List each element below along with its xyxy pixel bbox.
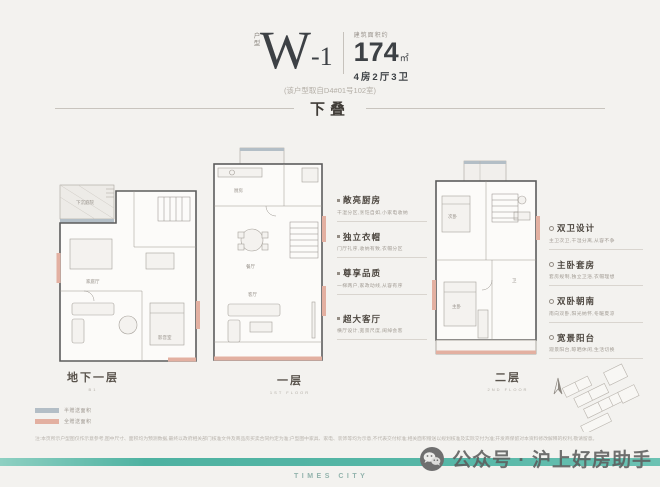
brand-logo-text: TIMES CITY — [294, 473, 368, 480]
annotation-item: 双卫设计 主卫次卫,干湿分离,从容不争 — [549, 222, 643, 250]
annotations-center: 敞亮厨房 干湿分区,烹饪自如,小家电收纳 独立衣帽 门厅礼序,收纳有致,衣帽分区… — [337, 194, 427, 349]
area-unit: ㎡ — [400, 51, 409, 64]
area-block: 建筑面积约 174 ㎡ 4房2厅3卫 — [354, 30, 410, 83]
circle-bullet-icon — [549, 226, 554, 231]
floorplan-f2: 次卧 主卧 卫 — [430, 160, 542, 366]
room-layout: 4房2厅3卫 — [354, 69, 410, 83]
floor-label-b1: 地下一层 B1 — [67, 369, 119, 392]
page: 户型 W -1 建筑面积约 174 ㎡ 4房2厅3卫 (该户型取自D4#01号1… — [0, 0, 660, 487]
divider-line-right — [366, 108, 605, 109]
site-plan — [540, 358, 650, 432]
square-bullet-icon — [337, 272, 340, 275]
unit-name-group: 户型 W -1 — [250, 28, 333, 74]
room-label-court: 下沉庭院 — [76, 199, 94, 206]
room-label-master: 主卧 — [452, 303, 461, 310]
floorplan-f1: 厨房 餐厅 客厅 — [206, 146, 330, 372]
room-label-dining: 餐厅 — [246, 263, 255, 270]
annotation-item: 尊享品质 一梯两户,家政动线,从容有序 — [337, 267, 427, 295]
north-arrow-icon — [554, 378, 562, 394]
section-divider: 下叠 — [55, 98, 605, 119]
room-label-media: 影音室 — [158, 334, 172, 341]
area-value: 174 — [354, 39, 399, 66]
divider-line-left — [55, 108, 294, 109]
room-label-living: 客厅 — [248, 291, 257, 298]
annotations-right: 双卫设计 主卫次卫,干湿分离,从容不争 主卧套房 套房规制,独立卫浴,衣帽理想 … — [549, 222, 643, 368]
floor-label-f1: 一层 1ST FLOOR — [255, 372, 325, 395]
title-block: 户型 W -1 建筑面积约 174 ㎡ 4房2厅3卫 — [0, 28, 660, 83]
full-gift-swatch — [35, 419, 59, 424]
section-title: 下叠 — [310, 98, 350, 119]
unit-name: W — [260, 28, 311, 74]
circle-bullet-icon — [549, 335, 554, 340]
annotation-item: 独立衣帽 门厅礼序,收纳有致,衣帽分区 — [337, 231, 427, 259]
circle-bullet-icon — [549, 262, 554, 267]
annotation-item: 主卧套房 套房规制,独立卫浴,衣帽理想 — [549, 259, 643, 287]
room-label-bath: 卫 — [512, 278, 517, 283]
legend-item-full-gift: 全赠送面积 — [35, 418, 92, 425]
floorplan-b1: 下沉庭院 家庭厅 影音室 — [50, 183, 202, 366]
source-note: (该户型取自D4#01号102室) — [0, 85, 660, 96]
unit-type-label: 户型 — [250, 32, 260, 47]
title-divider — [343, 32, 344, 74]
wechat-icon — [419, 446, 445, 472]
floor-sublabel-b1: B1 — [67, 387, 119, 392]
disclaimer-text: 注:本页所示户型图仅作示意参考,图中尺寸、面积均为预测数据,最终以政府相关部门核… — [35, 436, 642, 443]
room-label-family: 家庭厅 — [86, 278, 100, 285]
area-legend: 半赠送面积 全赠送面积 — [35, 407, 92, 429]
floor-sublabel-f1: 1ST FLOOR — [255, 390, 325, 395]
annotation-item: 双卧朝南 南向双卧,阳光纳怀,冬暖夏凉 — [549, 295, 643, 323]
circle-bullet-icon — [549, 299, 554, 304]
legend-item-half-gift: 半赠送面积 — [35, 407, 92, 414]
unit-number: -1 — [311, 42, 333, 72]
watermark-text: 公众号 · 沪上好房助手 — [452, 445, 652, 472]
annotation-item: 超大客厅 横厅设计,宽景尺度,阔绰会客 — [337, 313, 427, 341]
floor-label-f2: 二层 2ND FLOOR — [473, 369, 543, 392]
half-gift-swatch — [35, 408, 59, 413]
square-bullet-icon — [337, 317, 340, 320]
room-label-second: 次卧 — [448, 213, 457, 220]
square-bullet-icon — [337, 235, 340, 238]
watermark: 公众号 · 沪上好房助手 — [419, 445, 652, 472]
room-label-kitchen: 厨房 — [234, 187, 243, 194]
square-bullet-icon — [337, 199, 340, 202]
annotation-item: 宽景阳台 观景阳台,晾晒休闲,生活切换 — [549, 332, 643, 360]
floor-sublabel-f2: 2ND FLOOR — [473, 387, 543, 392]
annotation-item: 敞亮厨房 干湿分区,烹饪自如,小家电收纳 — [337, 194, 427, 222]
